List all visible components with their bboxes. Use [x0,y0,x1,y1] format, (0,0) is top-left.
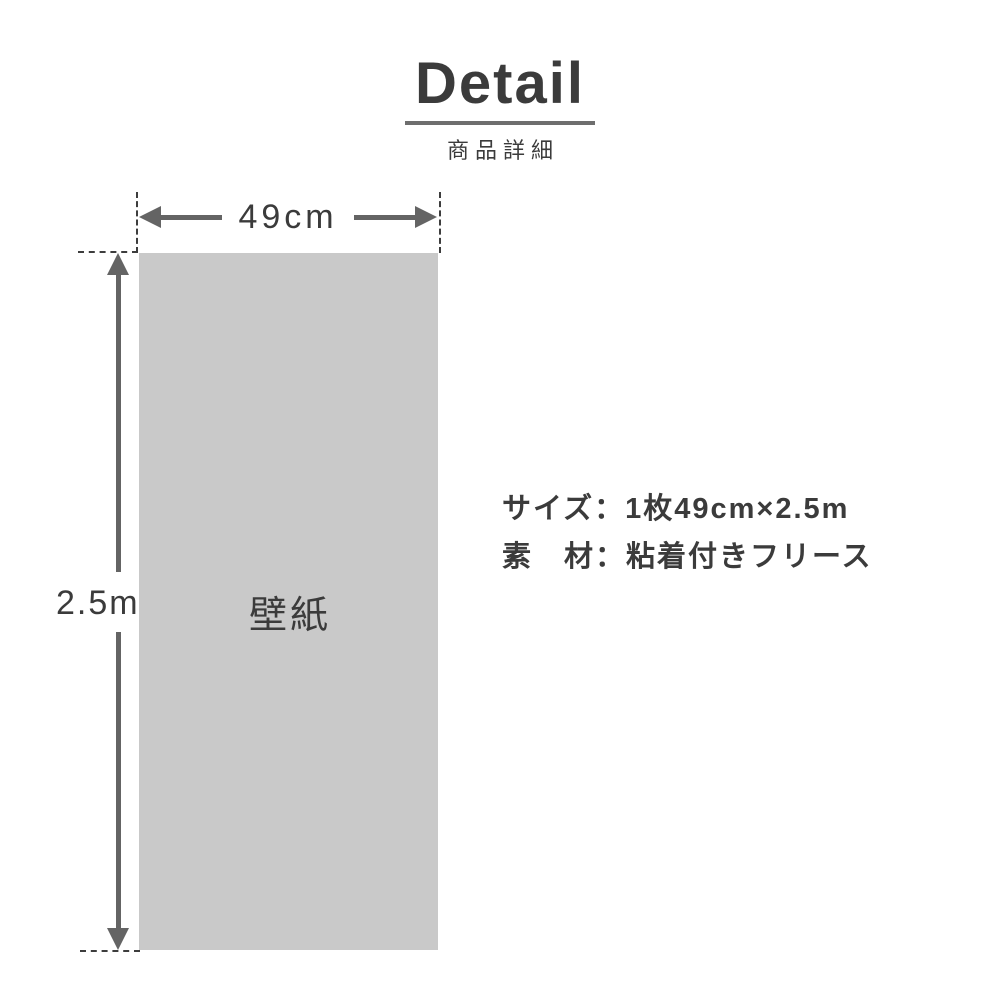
wallpaper-panel-label: 壁紙 [246,564,331,639]
title-underline [405,121,595,125]
spec-size: サイズ：1枚49cm×2.5m [502,485,873,533]
width-dimension: 49cm [139,195,437,239]
dimension-line [161,215,222,220]
arrow-down-icon [107,928,129,950]
wallpaper-panel: 壁紙 [139,253,438,950]
dimension-line [354,215,415,220]
extension-line-top-right [439,192,441,253]
dimension-line [116,274,121,572]
arrow-right-icon [415,206,437,228]
arrow-up-icon [107,253,129,275]
spec-material: 素 材：粘着付きフリース [502,533,873,581]
dimension-line [116,632,121,929]
arrow-left-icon [139,206,161,228]
extension-line-top-left [136,192,138,253]
spec-list: サイズ：1枚49cm×2.5m 素 材：粘着付きフリース [502,485,873,581]
product-detail-page: Detail 商品詳細 49cm 2.5m 壁紙 サイズ：1枚49cm×2.5m… [0,0,1000,1000]
width-label: 49cm [222,198,353,237]
extension-line-left-bottom [80,950,140,952]
page-title: Detail [0,50,1000,117]
page-subtitle: 商品詳細 [0,133,1000,165]
height-label: 2.5m [56,584,140,623]
